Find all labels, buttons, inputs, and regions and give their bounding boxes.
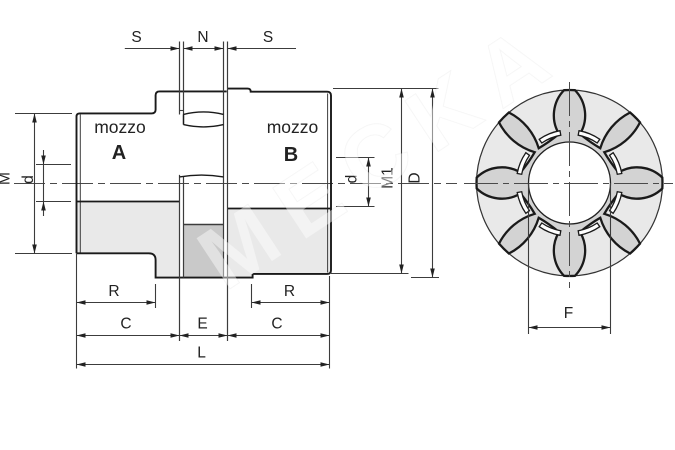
svg-text:R: R (284, 283, 295, 300)
svg-text:C: C (120, 316, 131, 333)
svg-text:M: M (0, 172, 14, 185)
svg-text:d: d (20, 175, 37, 184)
svg-text:mozzo: mozzo (267, 117, 319, 137)
svg-text:mozzo: mozzo (94, 117, 146, 137)
svg-text:F: F (564, 305, 573, 322)
svg-text:N: N (197, 29, 208, 46)
svg-text:S: S (131, 29, 141, 46)
svg-text:L: L (197, 345, 206, 362)
svg-text:E: E (197, 316, 207, 333)
svg-text:S: S (263, 29, 273, 46)
svg-text:A: A (112, 142, 126, 164)
svg-text:R: R (108, 283, 119, 300)
svg-text:C: C (271, 316, 282, 333)
